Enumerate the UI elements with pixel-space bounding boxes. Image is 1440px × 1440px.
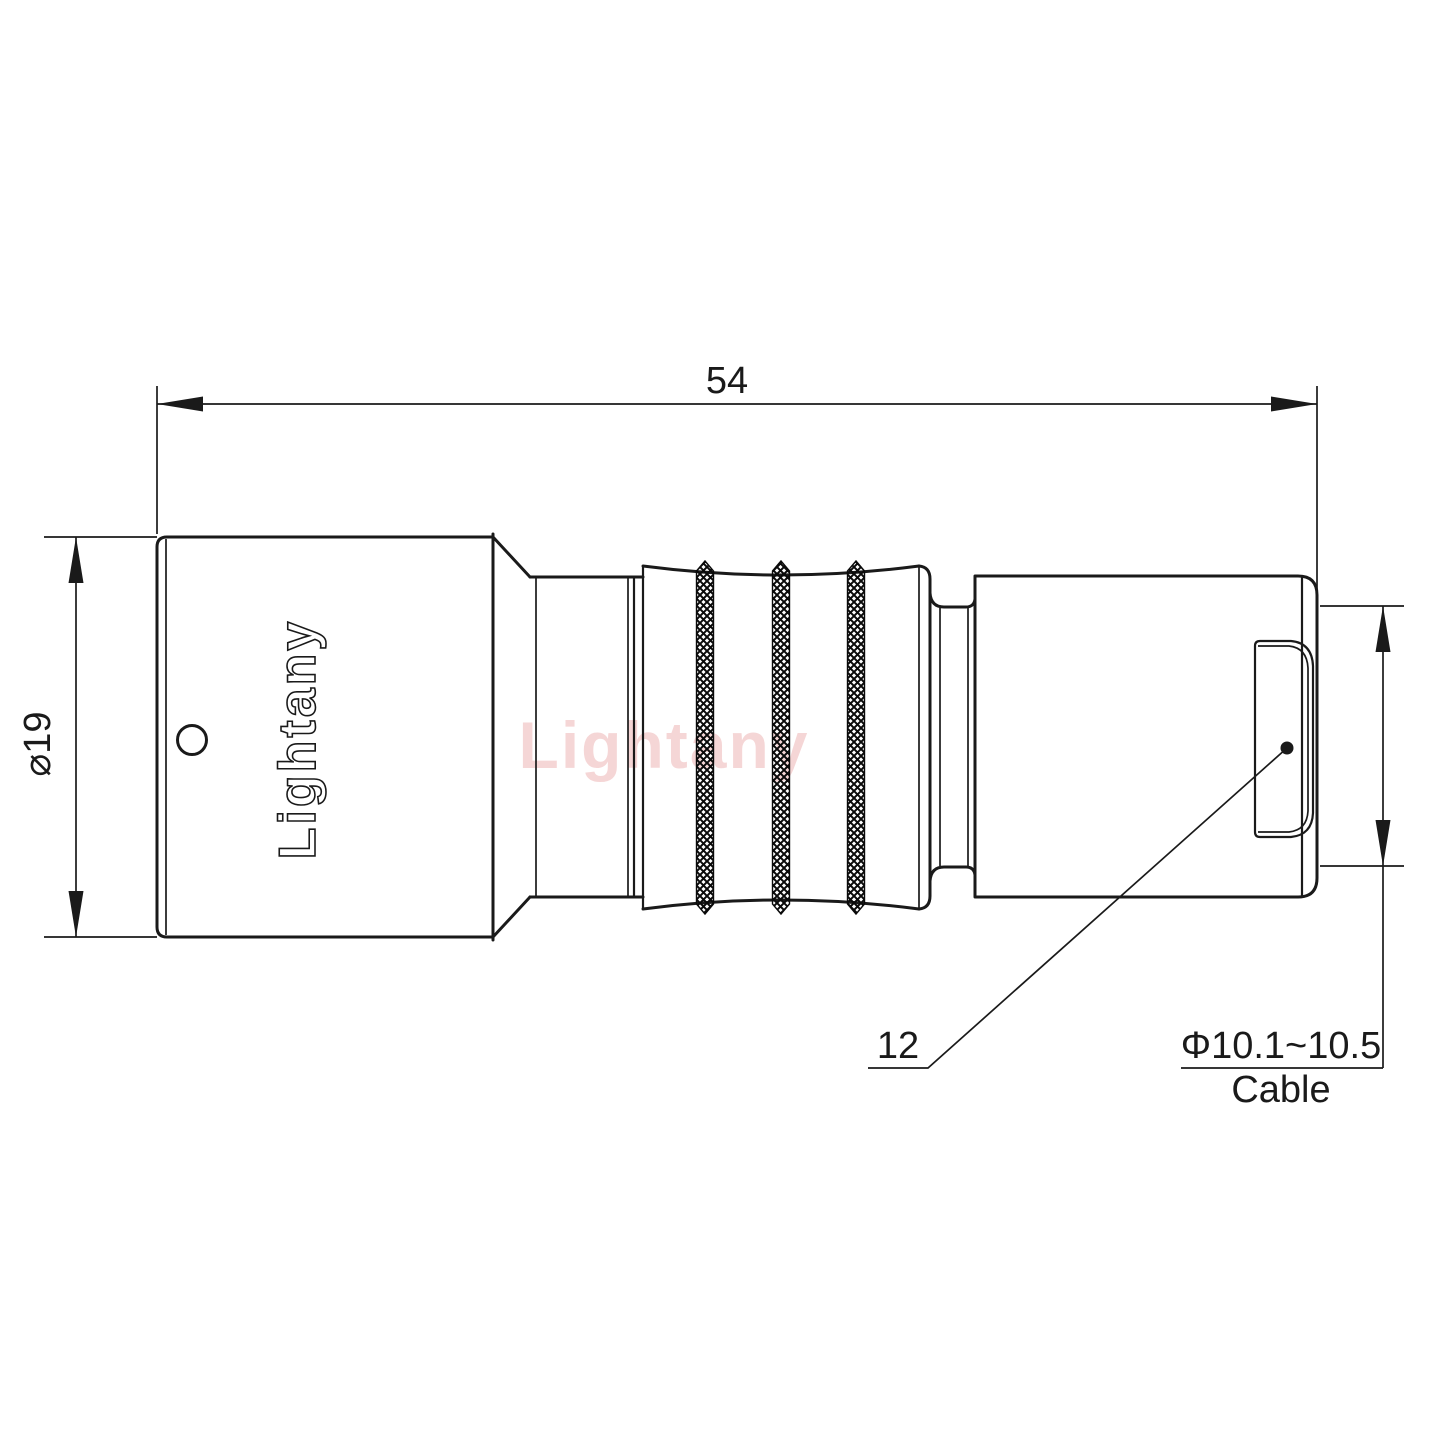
shell-pin-hole	[178, 726, 207, 755]
neck-groove-section	[930, 593, 975, 881]
knurl-band	[697, 561, 714, 914]
knurl-band	[773, 561, 790, 914]
dimension-overall-length: 54	[157, 360, 1317, 605]
bushing-outline	[1255, 641, 1313, 837]
taper-bottom-edge	[493, 897, 530, 937]
bushing-inner-line	[1258, 646, 1308, 832]
dimension-body-diameter: ⌀19	[17, 537, 157, 937]
technical-drawing-page: Lightany 54 ⌀19 Lightany	[0, 0, 1440, 1440]
taper-top-edge	[493, 537, 530, 577]
brand-engraving-text: Lightany	[269, 619, 327, 860]
grip-cap-face	[919, 566, 930, 909]
cable-bushing	[1255, 641, 1313, 837]
arrowhead-down	[1376, 820, 1391, 866]
arrowhead-down	[69, 891, 84, 937]
cable-range-value: Φ10.1~10.5	[1181, 1025, 1381, 1067]
arrowhead-up	[69, 537, 84, 583]
front-shell-body: Lightany	[157, 534, 493, 940]
watermark-text: Lightany	[519, 708, 810, 782]
knurl-band	[848, 561, 865, 914]
rear-nut-outline	[975, 576, 1317, 897]
neck-bottom-edge	[930, 867, 975, 881]
connector-drawing: Lightany 54 ⌀19 Lightany	[0, 0, 1440, 1440]
cable-label: Cable	[1231, 1069, 1330, 1111]
callout-value-12: 12	[877, 1025, 919, 1067]
dimension-cable-range: Φ10.1~10.5 Cable	[1181, 606, 1404, 1111]
neck-top-edge	[930, 593, 975, 607]
dimension-value-diameter: ⌀19	[17, 711, 59, 776]
arrowhead-right	[1271, 397, 1317, 412]
arrowhead-up	[1376, 606, 1391, 652]
dimension-value-54: 54	[706, 360, 748, 402]
arrowhead-left	[157, 397, 203, 412]
rear-nut-body	[975, 576, 1317, 897]
